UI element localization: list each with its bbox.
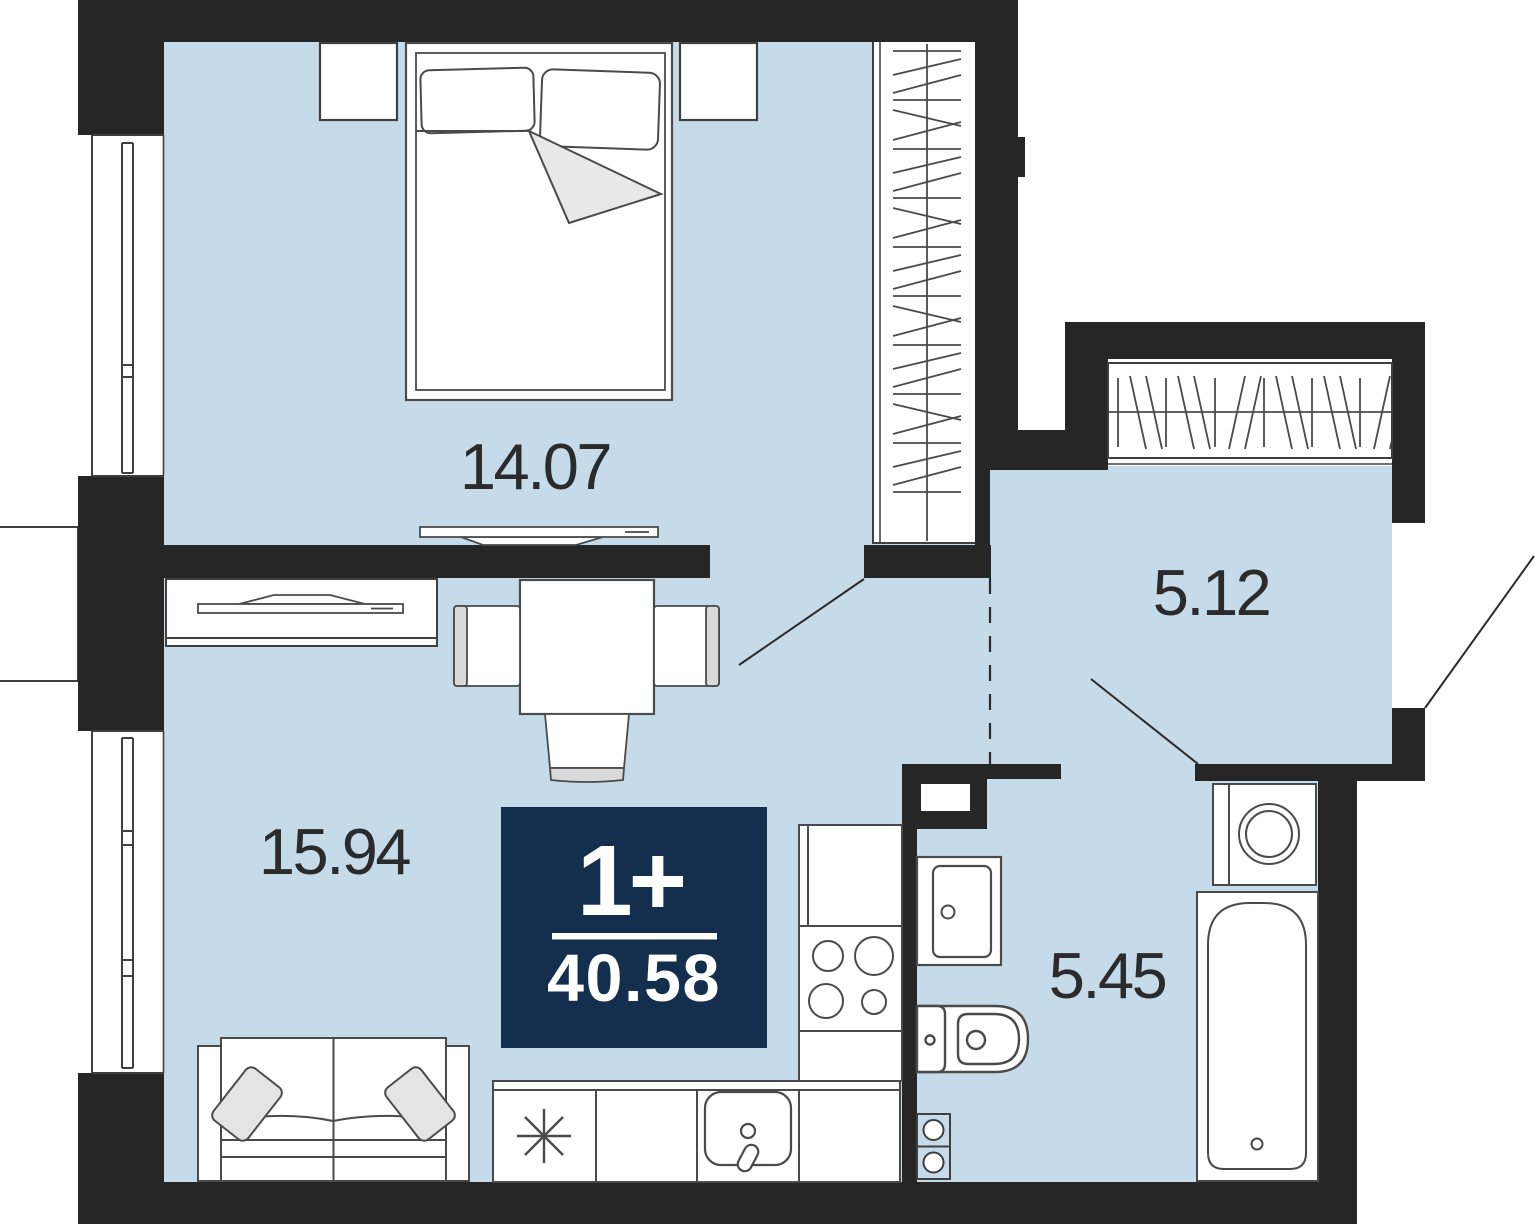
svg-text:1+: 1+ [577, 825, 684, 937]
svg-text:5.12: 5.12 [1153, 556, 1270, 629]
svg-text:5.45: 5.45 [1049, 939, 1166, 1012]
svg-text:15.94: 15.94 [259, 815, 411, 888]
svg-text:40.58: 40.58 [547, 942, 721, 1016]
svg-text:14.07: 14.07 [460, 430, 610, 503]
